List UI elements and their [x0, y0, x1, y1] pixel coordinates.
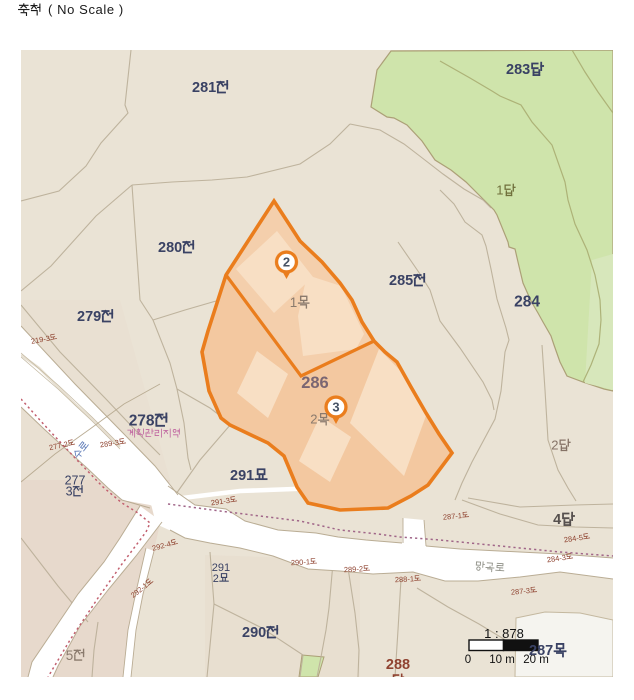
svg-text:2: 2	[283, 254, 290, 269]
svg-text:285: 285	[389, 273, 413, 289]
svg-text:288: 288	[386, 657, 410, 673]
svg-text:1: 1	[496, 183, 503, 198]
svg-text:1: 1	[290, 295, 298, 310]
svg-text:2: 2	[310, 412, 317, 427]
svg-text:281: 281	[192, 80, 216, 96]
svg-text:286: 286	[301, 374, 329, 392]
svg-text:287-3: 287-3	[510, 586, 530, 597]
svg-text:5: 5	[66, 648, 74, 663]
svg-text:288-1: 288-1	[395, 574, 415, 584]
svg-text:10 m: 10 m	[489, 654, 515, 666]
svg-text:3: 3	[332, 399, 339, 414]
svg-text:287: 287	[529, 643, 553, 659]
svg-text:290-1: 290-1	[291, 557, 311, 567]
svg-text:278: 278	[129, 413, 155, 430]
svg-text:4: 4	[553, 512, 561, 528]
svg-text:3: 3	[66, 484, 73, 498]
svg-text:280: 280	[158, 240, 182, 256]
svg-text:279: 279	[77, 309, 101, 325]
svg-text:1 : 878: 1 : 878	[484, 626, 524, 641]
svg-text:290: 290	[242, 625, 266, 641]
svg-text:284: 284	[514, 294, 540, 311]
svg-text:2: 2	[551, 438, 558, 453]
svg-text:2: 2	[213, 573, 219, 585]
svg-text:291: 291	[230, 468, 254, 484]
svg-text:289-2: 289-2	[344, 564, 364, 574]
svg-text:( No Scale ): ( No Scale )	[48, 2, 124, 17]
svg-text:0: 0	[465, 654, 471, 666]
svg-text:287-1: 287-1	[442, 511, 462, 522]
svg-text:283: 283	[506, 62, 530, 78]
